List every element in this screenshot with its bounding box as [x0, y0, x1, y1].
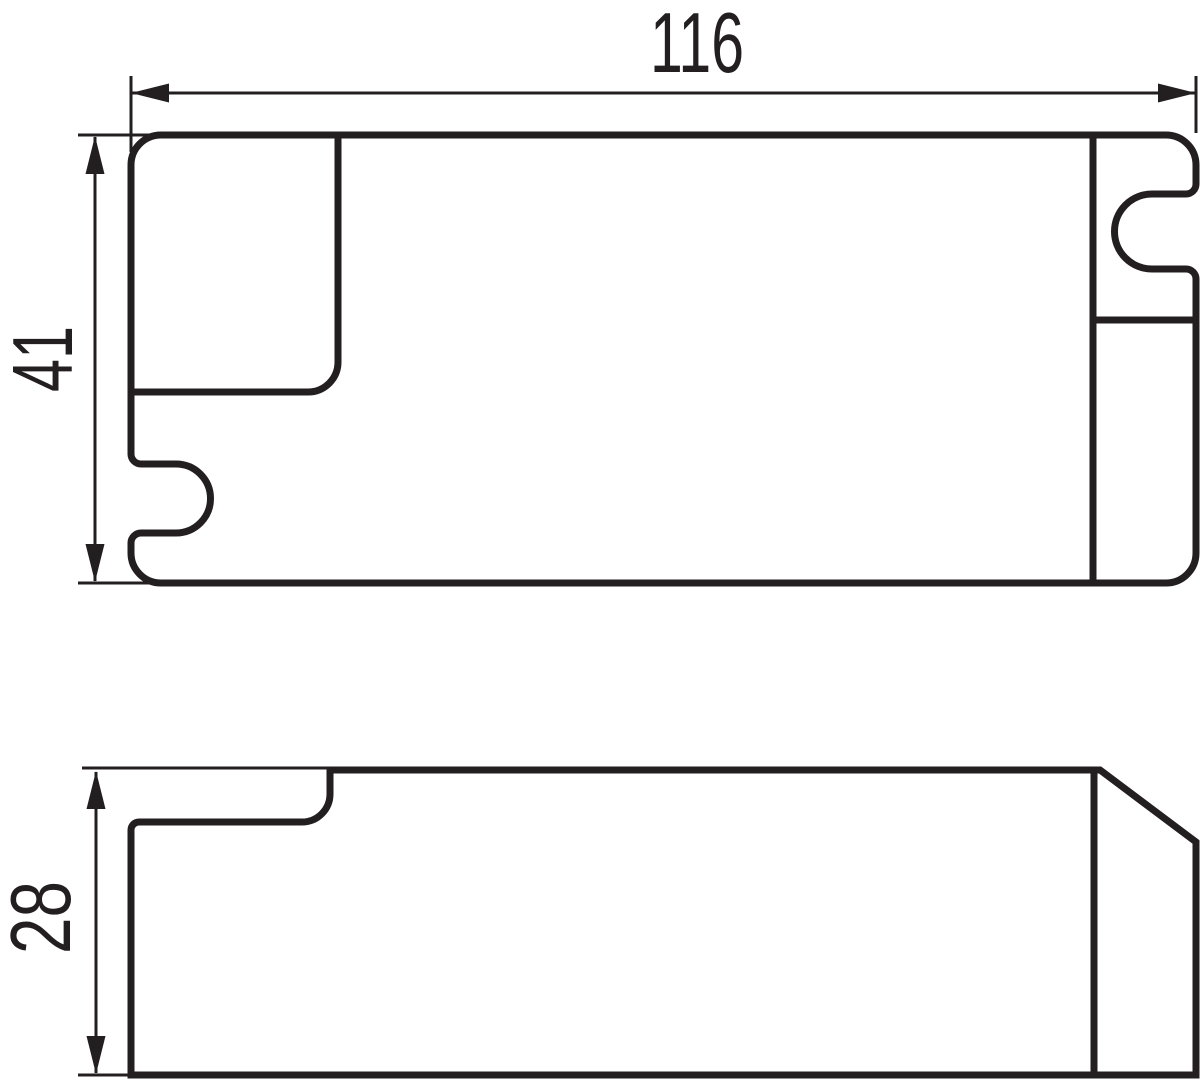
height-dimension-label: 41	[0, 326, 91, 392]
dimension-drawing-canvas: 116 41 28	[0, 0, 1200, 1081]
drawing-background	[0, 0, 1200, 1081]
technical-drawing-page: 116 41 28	[0, 0, 1200, 1081]
depth-dimension-label: 28	[0, 881, 89, 954]
width-dimension-label: 116	[650, 0, 744, 91]
